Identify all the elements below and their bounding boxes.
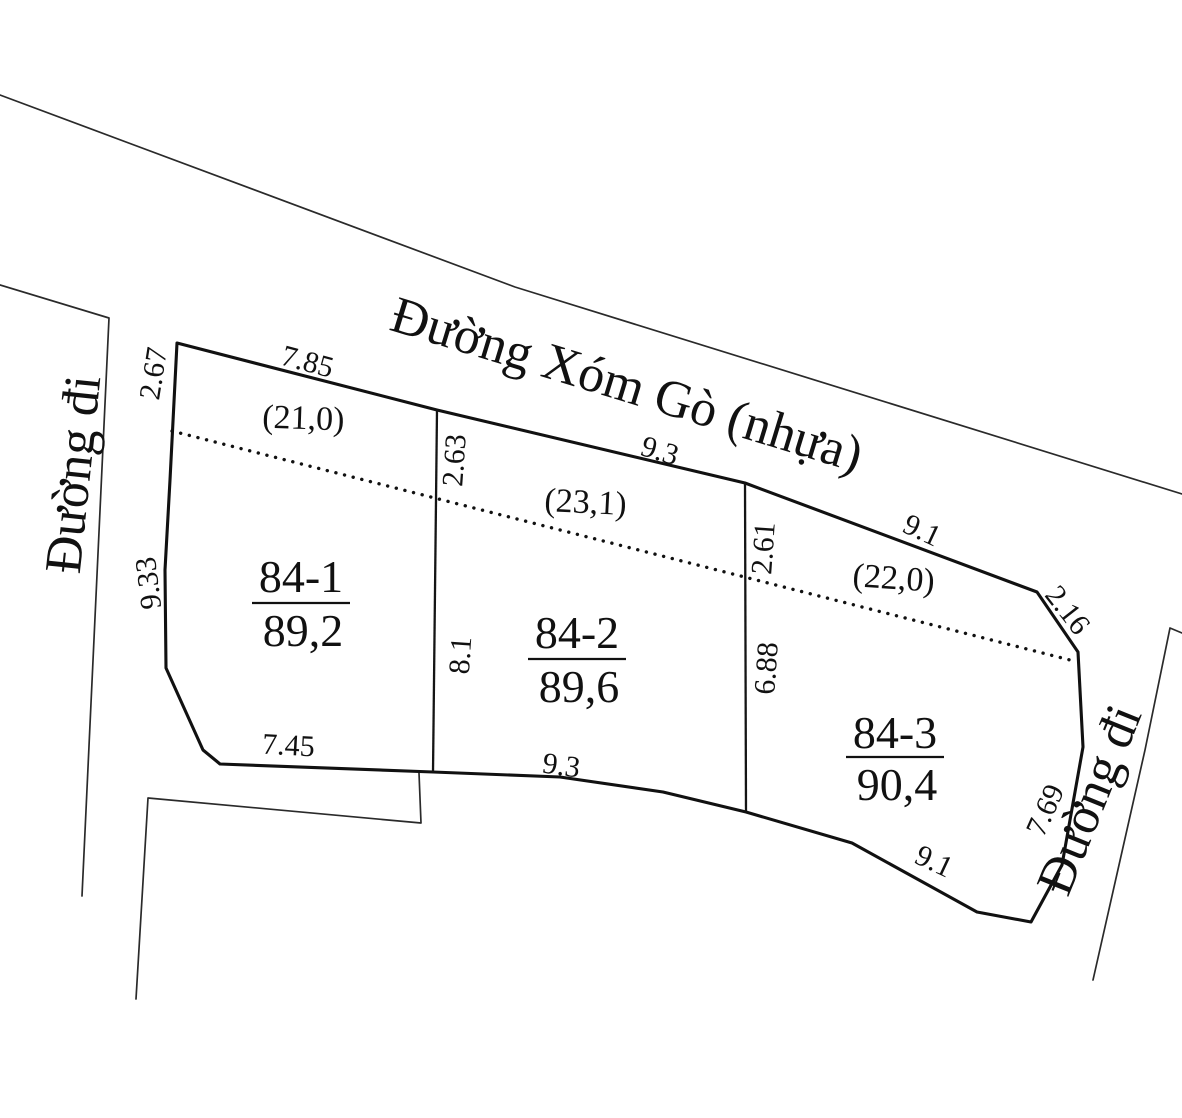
dim-84-2-right-upper: 2.61 [745,521,782,576]
dim-84-3-right-upper: 2.16 [1038,579,1096,641]
parcel-84-1-area: 89,2 [263,605,344,656]
parcel-84-2-id: 84-2 [535,607,619,658]
parcel-label-84-2: 84-2 89,6 [528,607,626,712]
parcel-label-84-3: 84-3 90,4 [846,707,944,810]
dim-84-1-right-lower: 8.1 [443,635,479,675]
dim-84-3-top: 9.1 [898,508,946,554]
dim-84-2-right-lower: 6.88 [748,641,785,696]
parcel-84-1-id: 84-1 [259,551,343,602]
cadastral-sketch-sheet: Đường Xóm Gò (nhựa) Đường đi Đường đi 84… [0,0,1182,1118]
cadastral-sketch: Đường Xóm Gò (nhựa) Đường đi Đường đi 84… [0,0,1182,1118]
parcel-84-3-id: 84-3 [853,707,937,758]
parcel-84-2-setback-area: (23,1) [544,482,628,523]
dim-84-1-left-upper: 2.67 [133,345,174,402]
divider-84-2-84-3 [745,483,746,812]
road-name-left: Đường đi [35,372,112,576]
divider-84-1-84-2 [433,410,437,772]
dim-84-1-bottom: 7.45 [261,728,315,764]
parcel-84-3-area: 90,4 [857,759,938,810]
dim-84-1-left-lower: 9.33 [129,555,168,611]
dim-84-1-top: 7.85 [278,339,337,384]
dim-84-2-bottom: 9.3 [540,747,582,785]
neighbor-boundary-line [136,773,421,999]
parcel-84-2-area: 89,6 [539,661,620,712]
dim-84-1-right-upper: 2.63 [436,433,473,488]
top-road-upper-edge [0,95,1182,494]
parcel-label-84-1: 84-1 89,2 [252,551,350,656]
parcel-84-3-setback-area: (22,0) [851,557,936,600]
parcel-84-1-setback-area: (21,0) [262,399,345,439]
